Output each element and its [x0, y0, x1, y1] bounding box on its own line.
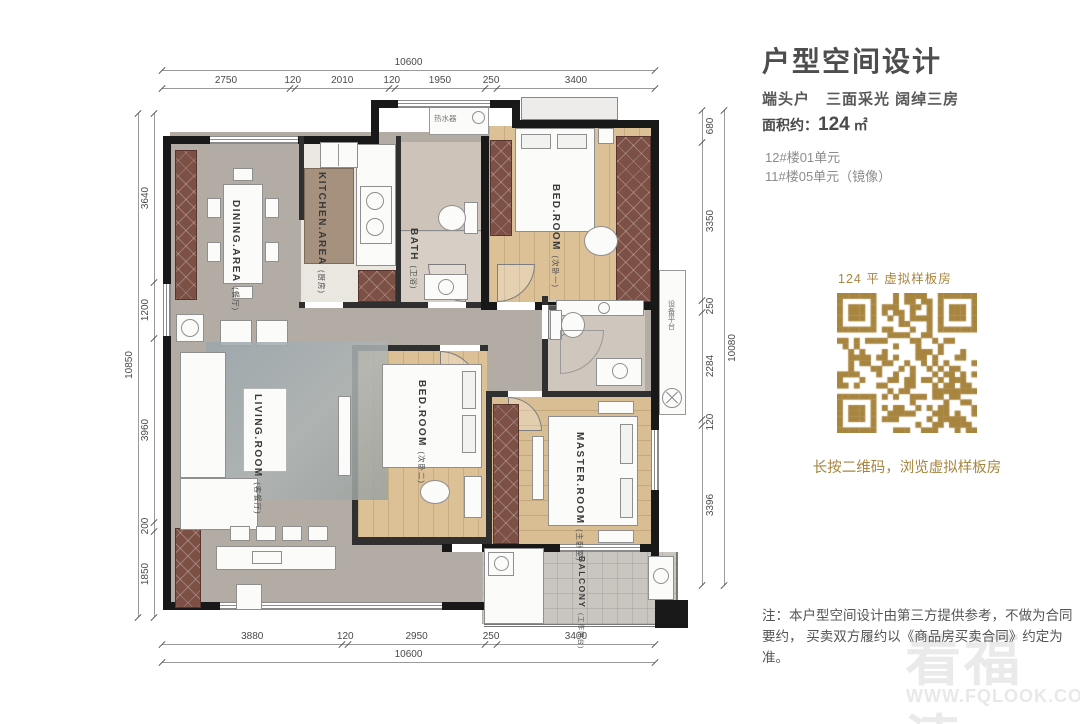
note-line-2: 买卖双方履约以《商品房买卖合同》约定为准。	[762, 629, 1063, 665]
dim-tick	[698, 107, 705, 114]
stove-burner	[366, 218, 384, 236]
room-label-zh: (工作阳台)	[577, 613, 584, 649]
dim-tick	[150, 335, 157, 342]
room-label-kitchen: KITCHEN.AREA (厨房)	[314, 172, 333, 294]
wardrobe-master	[493, 404, 519, 544]
dim-label: 250	[483, 75, 500, 86]
dim-tick	[150, 614, 157, 621]
door-gap-balcony	[452, 544, 482, 552]
dim-tick	[150, 528, 157, 535]
sofa	[180, 352, 226, 478]
cabinet-desk-area	[175, 528, 201, 608]
dining-chair	[207, 198, 221, 218]
fridge	[358, 270, 396, 302]
room-label-bath1: BATH (卫浴)	[406, 228, 425, 289]
dim-label: 250	[483, 631, 500, 642]
dim-tick	[158, 67, 165, 74]
desk-chair	[308, 526, 328, 541]
room-label-zh: (厨房)	[317, 270, 326, 294]
balcony-basin-circle	[653, 568, 669, 584]
dim-tick	[134, 614, 141, 621]
dim-label: 2010	[331, 75, 353, 86]
bath1-basin	[438, 279, 454, 295]
room-label-balcony: BALCONY (工作阳台)	[574, 556, 593, 649]
wall-balcony-corner	[655, 600, 688, 628]
desk-item	[252, 551, 282, 564]
pillow	[620, 424, 633, 464]
dim-tick	[651, 659, 658, 666]
room-label-zh: (客餐厅)	[253, 482, 262, 515]
room-label-en: MASTER.ROOM	[574, 432, 585, 525]
dim-tick	[698, 139, 705, 146]
washer-door	[494, 556, 509, 571]
dim-label: 3960	[140, 419, 151, 441]
opening-kitchen	[305, 302, 343, 308]
desk-chair	[282, 526, 302, 541]
dim-tick	[482, 85, 489, 92]
dim-label: 250	[705, 297, 716, 314]
dim-label: 1850	[140, 563, 151, 585]
bath2-basin	[612, 363, 628, 379]
door-gap-bedroom1	[497, 302, 535, 310]
bed-bench	[532, 436, 544, 500]
bath2-vanity-basin	[598, 302, 610, 314]
dim-tick	[134, 110, 141, 117]
water-heater-icon	[472, 111, 485, 124]
dim-tick	[493, 641, 500, 648]
dim-tick	[158, 85, 165, 92]
pillow	[462, 415, 476, 453]
dim-tick	[720, 107, 727, 114]
floorplan-poster: 10600 2750120201012019502503400 38801202…	[0, 0, 1080, 724]
dim-label: 120	[705, 414, 716, 431]
wall-left	[163, 136, 171, 610]
dim-label: 2284	[705, 354, 716, 376]
unit-line-1: 12#楼01单元	[765, 147, 840, 166]
nightstand-master	[598, 530, 634, 543]
window-right-master	[651, 430, 659, 490]
wall-bath1-bedroom1	[481, 136, 489, 310]
room-label-dining: DINING.AREA (餐厅)	[228, 200, 247, 311]
cabinet-dining	[175, 150, 197, 300]
pillow	[521, 134, 551, 149]
room-label-en: BED.ROOM	[550, 184, 561, 251]
dim-label: 1200	[140, 299, 151, 321]
pillow	[620, 478, 633, 518]
dim-tick	[150, 279, 157, 286]
dim-label: 120	[284, 75, 301, 86]
plant-pot	[181, 319, 199, 337]
dim-tick	[344, 641, 351, 648]
dim-label: 3350	[705, 210, 716, 232]
toilet-tank-bath1	[464, 202, 478, 234]
window-top-middle	[398, 100, 490, 108]
area-line: 面积约：124 ㎡	[762, 114, 868, 136]
desk-chair	[256, 526, 276, 541]
dim-tick	[150, 519, 157, 526]
pillow	[462, 371, 476, 409]
page-title: 户型空间设计	[762, 40, 942, 80]
wall-kitchen-bath1	[396, 136, 401, 308]
bay-window	[521, 97, 618, 120]
disclaimer-note: 注：本户型空间设计由第三方提供参考，不做为合同要约， 买卖双方履约以《商品房买卖…	[762, 606, 1076, 669]
wall-master-left	[486, 391, 492, 546]
dim-tick	[698, 582, 705, 589]
wall-top-bedroom1	[512, 120, 659, 128]
area-prefix: 面积约：	[762, 117, 818, 133]
room-label-en: BALCONY	[577, 556, 587, 609]
wall-bottom-mid	[442, 602, 484, 610]
tv-bench	[338, 396, 351, 476]
dim-tick	[482, 641, 489, 648]
dining-chair	[265, 198, 279, 218]
room-label-bedroom2: BED.ROOM (次卧二)	[414, 380, 433, 484]
desk-chair	[230, 526, 250, 541]
kitchen-sink	[320, 142, 358, 168]
room-label-living: LIVING.ROOM (客餐厅)	[250, 394, 269, 515]
room-label-en: BATH	[408, 228, 419, 261]
equipment-label: 设备平台	[666, 300, 677, 330]
door-gap-master	[508, 391, 542, 397]
door-gap-bedroom2	[440, 345, 480, 351]
nightstand-bedroom1	[598, 128, 614, 144]
subtitle: 端头户 三面采光 阔绰三房	[762, 88, 959, 109]
stove-burner	[366, 192, 384, 210]
dim-label: 2750	[215, 75, 237, 86]
dining-chair	[265, 242, 279, 262]
room-label-zh: (次卧二)	[417, 451, 426, 484]
wardrobe-bedroom1-right	[616, 136, 651, 302]
dim-label: 3880	[241, 631, 263, 642]
dining-chair	[233, 168, 253, 181]
dim-tick	[150, 110, 157, 117]
living-rug	[206, 342, 388, 500]
dim-tick	[158, 659, 165, 666]
room-label-zh: (餐厅)	[231, 287, 240, 311]
dim-tick	[651, 67, 658, 74]
room-label-zh: (次卧一)	[551, 255, 560, 288]
sofa-chaise	[180, 478, 258, 530]
nightstand-master	[598, 401, 634, 414]
dim-label: 1950	[429, 75, 451, 86]
door-gap-bath1	[428, 302, 466, 308]
unit-line-2: 11#楼05单元（镜像）	[765, 166, 891, 185]
dining-chair	[207, 242, 221, 262]
room-label-en: DINING.AREA	[230, 200, 241, 283]
qr-caption-bottom: 长按二维码，浏览虚拟样板房	[807, 456, 1007, 477]
room-label-master: MASTER.ROOM (主卧室)	[572, 432, 591, 562]
stool	[236, 584, 262, 610]
wardrobe-bedroom1-left	[490, 140, 512, 236]
dim-label: 200	[140, 518, 151, 535]
area-unit: ㎡	[854, 117, 868, 133]
dim-tick	[651, 85, 658, 92]
toilet-bowl-bath1	[438, 205, 466, 231]
room-label-en: BED.ROOM	[416, 380, 427, 447]
dim-label: 3400	[565, 75, 587, 86]
dim-tick	[720, 582, 727, 589]
water-heater-label: 热水器	[434, 113, 457, 124]
dim-label: 3640	[140, 186, 151, 208]
room-label-en: LIVING.ROOM	[252, 394, 263, 478]
dim-label: 10600	[395, 57, 423, 68]
dim-tick	[651, 641, 658, 648]
room-label-bedroom1: BED.ROOM (次卧一)	[548, 184, 567, 288]
qr-caption-top: 124 平 虚拟样板房	[838, 268, 952, 287]
dim-label: 120	[383, 75, 400, 86]
dim-label: 680	[705, 118, 716, 135]
pillow	[557, 134, 587, 149]
cabinet-bedroom2	[464, 476, 482, 518]
dim-label: 10080	[727, 334, 738, 362]
dim-label: 10600	[395, 649, 423, 660]
wall-right	[651, 120, 659, 560]
room-label-zh: (卫浴)	[409, 265, 418, 289]
hanging-chair	[584, 226, 618, 256]
room-label-en: KITCHEN.AREA	[316, 172, 327, 266]
dim-label: 3396	[705, 494, 716, 516]
window-top-dining	[210, 136, 298, 144]
dim-label: 2950	[406, 631, 428, 642]
watermark-site: WWW.FQLOOK.COM	[906, 686, 1080, 707]
dim-label: 120	[337, 631, 354, 642]
sink-divider	[338, 144, 339, 166]
dim-tick	[493, 85, 500, 92]
dim-tick	[158, 641, 165, 648]
area-value: 124	[818, 114, 850, 135]
dim-label: 10850	[124, 351, 135, 379]
qr-code	[837, 293, 977, 433]
window-left-living	[163, 284, 171, 336]
